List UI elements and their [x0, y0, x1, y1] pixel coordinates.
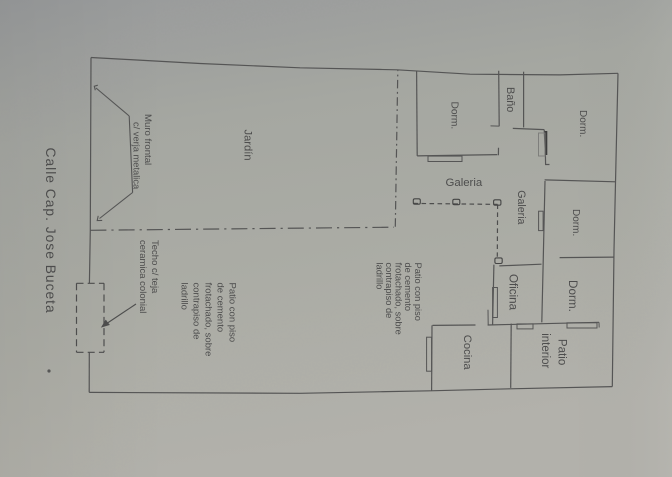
- svg-text:Dorm.: Dorm.: [449, 102, 460, 130]
- svg-text:c/ verja metalica: c/ verja metalica: [132, 122, 142, 190]
- svg-text:Galeria: Galeria: [446, 177, 483, 189]
- svg-text:Dorm.: Dorm.: [566, 280, 579, 312]
- svg-text:Patio: Patio: [556, 339, 569, 365]
- svg-text:Galeria: Galeria: [515, 190, 527, 224]
- svg-text:contrapiso de: contrapiso de: [384, 263, 394, 319]
- svg-text:contrapiso de: contrapiso de: [191, 283, 202, 340]
- svg-text:Calle Cap. Jose Buceta: Calle Cap. Jose Buceta: [43, 148, 58, 314]
- svg-text:Baño: Baño: [504, 87, 516, 112]
- svg-text:Techo c/ teja: Techo c/ teja: [149, 240, 160, 294]
- svg-text:Jardín: Jardín: [242, 130, 254, 161]
- svg-text:ladrillo: ladrillo: [374, 263, 384, 290]
- svg-text:Patio con piso: Patio con piso: [227, 283, 238, 343]
- svg-text:frotachado, sobre: frotachado, sobre: [203, 283, 214, 357]
- svg-text:de cemento: de cemento: [403, 263, 413, 312]
- svg-text:ladrillo: ladrillo: [179, 283, 190, 310]
- svg-text:frotachado, sobre: frotachado, sobre: [394, 263, 404, 335]
- svg-text:interior: interior: [539, 333, 551, 368]
- svg-text:Oficina: Oficina: [506, 274, 519, 311]
- svg-text:Muro frontal: Muro frontal: [142, 114, 153, 165]
- svg-text:de cemento: de cemento: [215, 283, 226, 333]
- svg-text:Dorm.: Dorm.: [570, 209, 581, 236]
- svg-text:Cocina: Cocina: [461, 335, 473, 371]
- svg-text:ceramica colonial: ceramica colonial: [137, 240, 148, 313]
- svg-text:Patio con piso: Patio con piso: [413, 263, 423, 321]
- svg-text:Dorm.: Dorm.: [577, 110, 588, 137]
